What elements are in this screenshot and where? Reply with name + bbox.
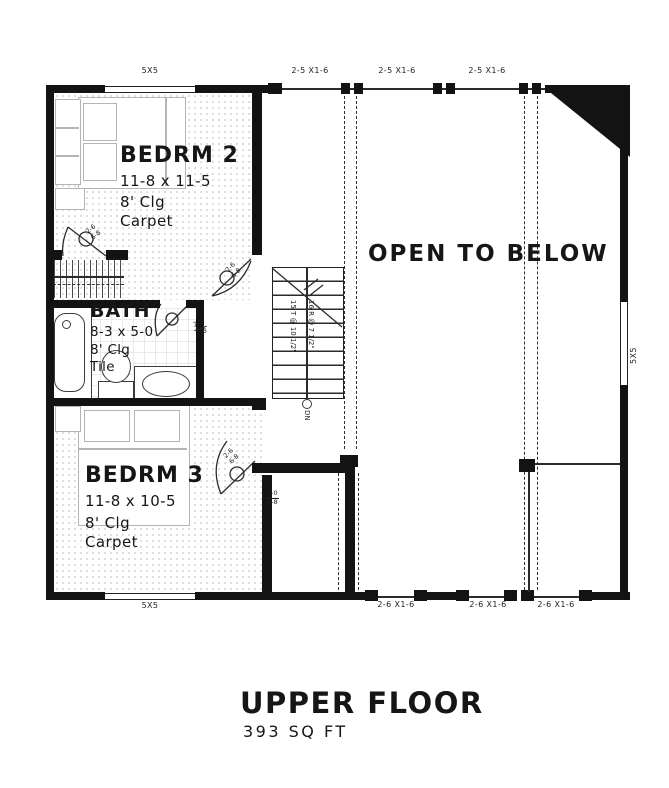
window-dim-bottom-1: 2-6 X1-6 bbox=[372, 600, 420, 609]
drawing-area: 393 SQ FT bbox=[243, 722, 348, 741]
opening-size-height: 2-8 bbox=[267, 498, 278, 506]
opening-size-label: 7-0 2-8 bbox=[266, 490, 279, 507]
loft-edge-line bbox=[528, 463, 530, 592]
open-to-below-label: OPEN TO BELOW bbox=[368, 241, 609, 267]
wall-bath-east bbox=[196, 300, 204, 406]
closet-wall-stub bbox=[46, 250, 62, 260]
wall-segment bbox=[195, 85, 275, 93]
wall-segment bbox=[592, 592, 630, 600]
wall-right-upper bbox=[620, 93, 628, 302]
wall-bath-south bbox=[46, 398, 262, 406]
room-floor-bath: Tile bbox=[90, 359, 115, 375]
wall-post bbox=[186, 300, 196, 308]
window-dim-bottom-left: 5X5 bbox=[128, 601, 172, 610]
stair-break-tick bbox=[309, 285, 323, 296]
window-dim-bottom-2: 2-6 X1-6 bbox=[464, 600, 512, 609]
wall-segment bbox=[46, 85, 105, 93]
loft-edge-line bbox=[528, 463, 620, 465]
window-dim-top-2: 2-5 X1-6 bbox=[373, 66, 421, 75]
window-dim-bottom-3: 2-6 X1-6 bbox=[532, 600, 580, 609]
room-dims-bedrm2: 11-8 x 11-5 bbox=[120, 172, 211, 190]
drawing-title: UPPER FLOOR bbox=[240, 686, 484, 720]
room-label-bedrm3: BEDRM 3 bbox=[85, 463, 204, 488]
wall-segment bbox=[545, 85, 630, 93]
window-dim-top-left: 5X5 bbox=[128, 66, 172, 75]
window-right bbox=[620, 302, 628, 385]
wall-post bbox=[252, 398, 266, 410]
wall-post bbox=[446, 83, 455, 94]
wall-left bbox=[46, 85, 54, 600]
wall-post bbox=[532, 83, 541, 94]
wall-post bbox=[519, 459, 535, 472]
wall-post bbox=[268, 83, 282, 94]
window-bottom-1 bbox=[378, 596, 414, 598]
wall-right-lower bbox=[620, 385, 628, 592]
window-dim-top-3: 2-5 X1-6 bbox=[463, 66, 511, 75]
floor-plan: 15 T @ 10 1/2" 16 R @ 7 1/2" DN bbox=[0, 0, 669, 788]
door-knob-bath bbox=[166, 313, 178, 325]
room-ceiling-bath: 8' Clg bbox=[90, 342, 130, 358]
wall-stairwell bbox=[345, 461, 355, 592]
wall-segment bbox=[46, 592, 105, 600]
window-band-top bbox=[275, 88, 547, 90]
wall-post bbox=[433, 83, 442, 94]
wall-segment bbox=[195, 592, 368, 600]
wall-post bbox=[354, 83, 363, 94]
room-floor-bedrm2: Carpet bbox=[120, 212, 173, 230]
door-arc-closet bbox=[63, 227, 68, 256]
room-ceiling-bedrm2: 8' Clg bbox=[120, 193, 165, 211]
window-dim-right: 5X5 bbox=[629, 347, 638, 364]
room-dims-bedrm3: 11-8 x 10-5 bbox=[85, 492, 176, 510]
wall-post bbox=[341, 83, 350, 94]
window-bottom-3 bbox=[534, 596, 579, 598]
window-dim-top-1: 2-5 X1-6 bbox=[286, 66, 334, 75]
wall-bedrm2-east bbox=[252, 93, 262, 255]
window-top-left bbox=[105, 86, 195, 93]
stair-break-tick bbox=[304, 279, 318, 290]
wall-segment bbox=[427, 592, 456, 600]
door-arc-bath bbox=[155, 304, 161, 336]
closet-wall-stub bbox=[106, 250, 128, 260]
wall-post bbox=[519, 83, 528, 94]
wall-post bbox=[579, 590, 592, 601]
room-label-bedrm2: BEDRM 2 bbox=[120, 143, 239, 168]
room-ceiling-bedrm3: 8' Clg bbox=[85, 514, 130, 532]
stair-break-line bbox=[272, 268, 342, 327]
door-leaf-bedrm3 bbox=[221, 461, 255, 494]
window-bottom-left bbox=[105, 593, 195, 600]
room-floor-bedrm3: Carpet bbox=[85, 533, 138, 551]
room-dims-bath: 8-3 x 5-0 bbox=[90, 324, 153, 340]
door-leaf-bath bbox=[157, 305, 188, 336]
corner-chamfer bbox=[551, 93, 630, 157]
room-label-bath: BATH bbox=[90, 300, 151, 322]
window-bottom-2 bbox=[469, 596, 504, 598]
